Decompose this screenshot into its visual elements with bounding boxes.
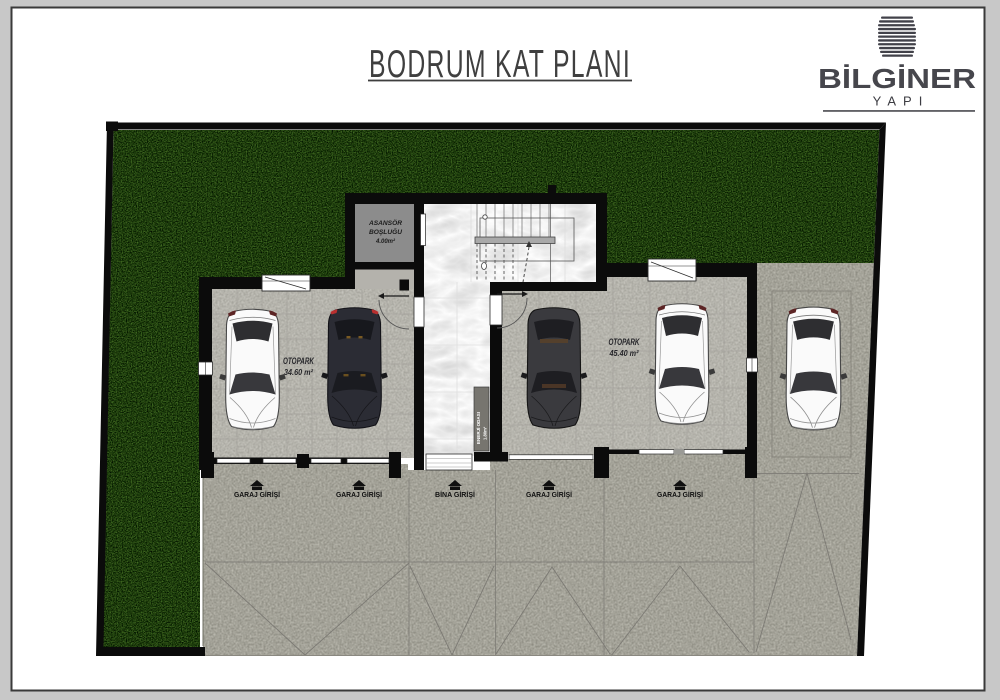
svg-text:ENERJİ ODASI: ENERJİ ODASI [475, 411, 482, 444]
svg-text:BİNA GİRİŞİ: BİNA GİRİŞİ [435, 490, 475, 499]
svg-text:OTOPARK: OTOPARK [609, 337, 640, 347]
svg-text:45.40 m²: 45.40 m² [609, 349, 639, 358]
svg-text:ASANSÖR: ASANSÖR [368, 218, 402, 227]
svg-text:GARAJ GİRİŞİ: GARAJ GİRİŞİ [657, 490, 703, 499]
svg-text:34.60 m²: 34.60 m² [284, 368, 313, 377]
svg-text:YAPI: YAPI [873, 94, 930, 109]
svg-text:GARAJ GİRİŞİ: GARAJ GİRİŞİ [336, 490, 382, 499]
svg-text:GARAJ GİRİŞİ: GARAJ GİRİŞİ [526, 490, 572, 499]
svg-text:1.80m²: 1.80m² [483, 426, 488, 440]
svg-text:GARAJ GİRİŞİ: GARAJ GİRİŞİ [234, 490, 280, 499]
svg-text:BOŞLUĞU: BOŞLUĞU [369, 227, 402, 236]
svg-text:OTOPARK: OTOPARK [283, 356, 314, 366]
svg-text:4.00m²: 4.00m² [375, 238, 396, 245]
svg-text:BİLGİNER: BİLGİNER [818, 63, 976, 94]
svg-text:BODRUM KAT PLANI: BODRUM KAT PLANI [369, 43, 631, 86]
